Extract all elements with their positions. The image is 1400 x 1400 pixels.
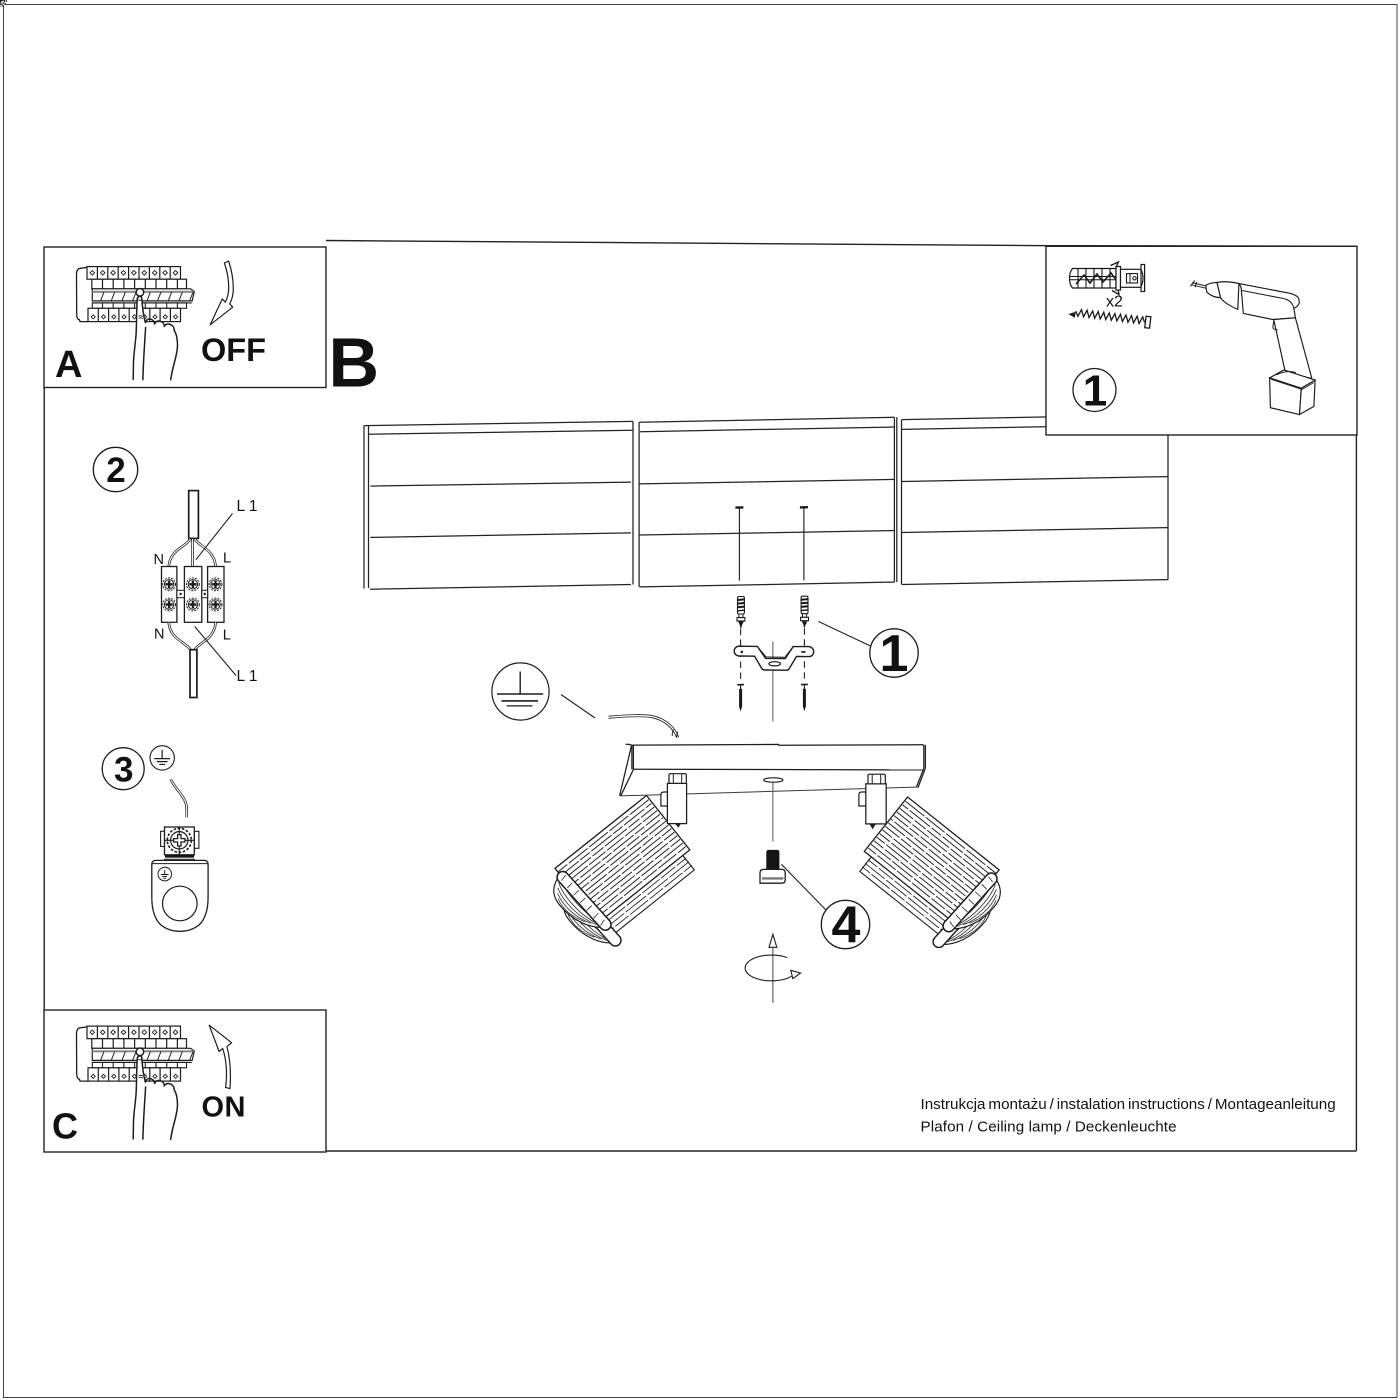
svg-text:A: A	[55, 344, 82, 386]
svg-text:ON: ON	[202, 1092, 247, 1124]
svg-text:Plafon / Ceiling lamp / Decken: Plafon / Ceiling lamp / Deckenleuchte	[921, 1119, 1177, 1136]
svg-text:1: 1	[1083, 367, 1107, 416]
svg-text:L: L	[223, 628, 231, 644]
svg-text:1: 1	[880, 625, 909, 683]
svg-text:L 1: L 1	[237, 498, 258, 515]
svg-text:2: 2	[106, 451, 125, 490]
svg-text:L 1: L 1	[237, 668, 258, 685]
svg-text:OFF: OFF	[201, 332, 266, 368]
svg-text:C: C	[52, 1106, 78, 1147]
svg-text:N: N	[154, 552, 164, 568]
svg-text:3: 3	[114, 751, 133, 790]
svg-text:B: B	[329, 324, 380, 402]
svg-text:4: 4	[832, 897, 861, 955]
svg-text:x2: x2	[1106, 294, 1123, 311]
svg-text:L: L	[223, 551, 231, 567]
svg-text:Instrukcja montażu / instalati: Instrukcja montażu / instalation instruc…	[921, 1096, 1336, 1113]
svg-text:N: N	[154, 627, 164, 643]
